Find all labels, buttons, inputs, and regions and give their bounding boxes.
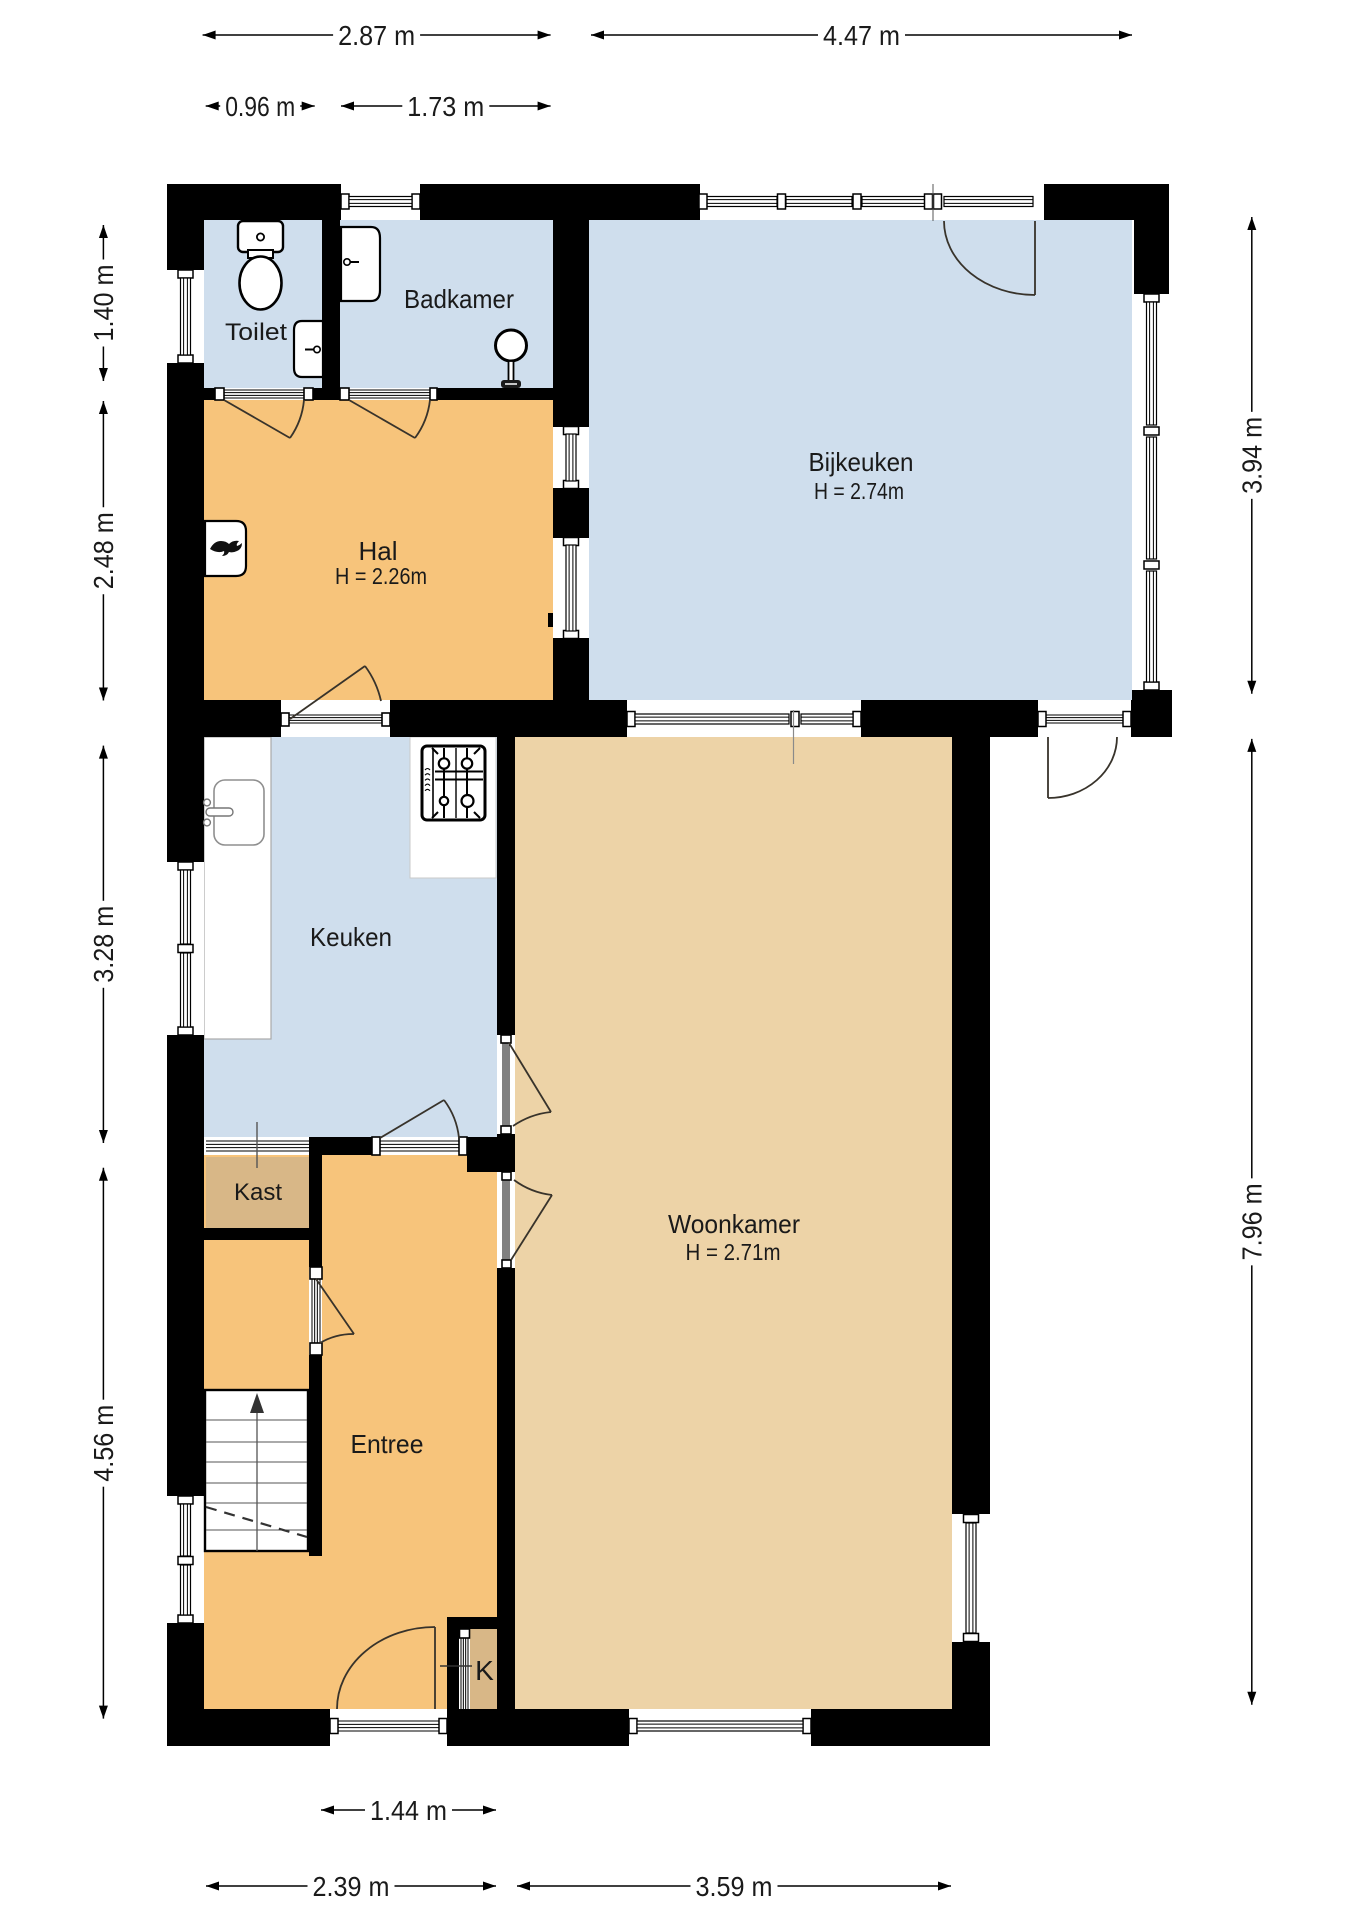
svg-text:Entree: Entree [351,1429,424,1459]
svg-text:2.87 m: 2.87 m [338,20,415,51]
svg-text:7.96 m: 7.96 m [1236,1183,1267,1260]
svg-text:H = 2.71m: H = 2.71m [686,1239,781,1265]
svg-text:4.56 m: 4.56 m [88,1405,119,1482]
svg-text:1.44 m: 1.44 m [370,1795,447,1826]
svg-text:3.59 m: 3.59 m [696,1871,773,1902]
svg-text:H = 2.74m: H = 2.74m [814,478,904,504]
svg-text:H = 2.26m: H = 2.26m [335,563,427,589]
svg-text:0.96 m: 0.96 m [225,91,295,122]
svg-text:Badkamer: Badkamer [404,284,514,314]
svg-text:Kast: Kast [234,1179,282,1206]
svg-text:Keuken: Keuken [310,922,392,952]
svg-text:Toilet: Toilet [225,319,287,346]
svg-text:Hal: Hal [358,536,397,566]
svg-text:Bijkeuken: Bijkeuken [809,447,914,477]
svg-text:2.39 m: 2.39 m [313,1871,390,1902]
svg-text:1.73 m: 1.73 m [407,91,484,122]
svg-text:Woonkamer: Woonkamer [668,1209,800,1239]
svg-text:3.94 m: 3.94 m [1236,417,1267,494]
svg-text:K: K [475,1655,494,1686]
svg-text:2.48 m: 2.48 m [88,512,119,589]
svg-text:3.28 m: 3.28 m [88,906,119,983]
svg-text:1.40 m: 1.40 m [88,265,119,342]
svg-text:4.47 m: 4.47 m [823,20,900,51]
